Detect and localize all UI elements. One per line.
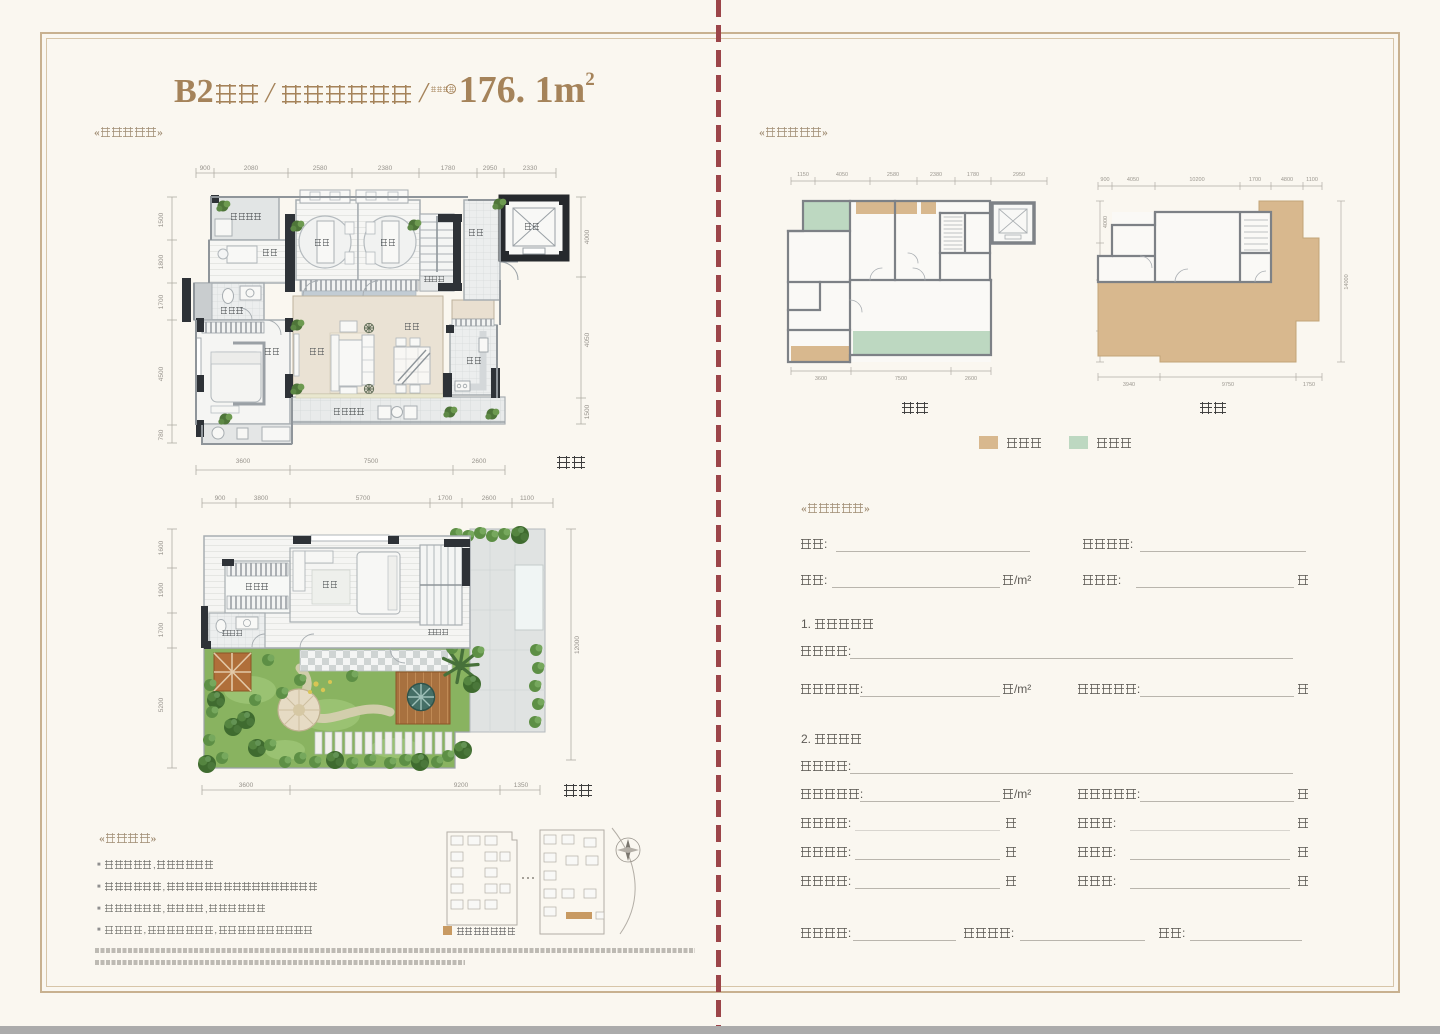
svg-text:2380: 2380 [930, 172, 942, 178]
svg-text:1780: 1780 [967, 172, 979, 178]
svg-text:2950: 2950 [483, 165, 498, 172]
svg-text:2380: 2380 [378, 165, 393, 172]
svg-text:12000: 12000 [574, 636, 581, 654]
svg-text:4050: 4050 [836, 172, 848, 178]
svg-text:1150: 1150 [797, 172, 809, 178]
svg-text:7500: 7500 [895, 376, 907, 382]
svg-text:4000: 4000 [584, 229, 591, 244]
svg-text:9200: 9200 [454, 782, 469, 789]
svg-text:1100: 1100 [520, 495, 534, 502]
svg-text:1700: 1700 [1249, 177, 1261, 183]
svg-text:1800: 1800 [158, 254, 165, 269]
svg-text:1700: 1700 [158, 294, 165, 309]
svg-text:1500: 1500 [584, 404, 591, 419]
svg-text:2080: 2080 [244, 165, 259, 172]
svg-text:2330: 2330 [523, 165, 538, 172]
svg-text:14000: 14000 [1344, 274, 1350, 289]
svg-text:900: 900 [215, 495, 226, 502]
svg-text:900: 900 [200, 165, 211, 172]
svg-text:3600: 3600 [239, 782, 254, 789]
svg-text:900: 900 [1100, 177, 1109, 183]
svg-text:4050: 4050 [1127, 177, 1139, 183]
svg-text:1600: 1600 [158, 540, 165, 555]
svg-text:1100: 1100 [1306, 177, 1318, 183]
svg-text:3940: 3940 [1123, 382, 1135, 388]
svg-text:2580: 2580 [887, 172, 899, 178]
svg-text:5200: 5200 [158, 697, 165, 712]
svg-text:2600: 2600 [965, 376, 977, 382]
svg-text:4500: 4500 [158, 366, 165, 381]
svg-text:4800: 4800 [1281, 177, 1293, 183]
svg-text:2580: 2580 [313, 165, 328, 172]
svg-text:9750: 9750 [1222, 382, 1234, 388]
svg-text:1700: 1700 [438, 495, 453, 502]
svg-text:3800: 3800 [254, 495, 269, 502]
svg-text:2950: 2950 [1013, 172, 1025, 178]
svg-text:2600: 2600 [472, 458, 487, 465]
svg-text:3600: 3600 [815, 376, 827, 382]
svg-text:4050: 4050 [584, 332, 591, 347]
svg-text:1780: 1780 [441, 165, 456, 172]
svg-text:780: 780 [158, 429, 165, 440]
svg-text:1700: 1700 [158, 622, 165, 637]
svg-text:3600: 3600 [236, 458, 251, 465]
svg-text:1900: 1900 [158, 582, 165, 597]
svg-text:1500: 1500 [158, 212, 165, 227]
svg-text:1750: 1750 [1303, 382, 1315, 388]
svg-text:10200: 10200 [1189, 177, 1204, 183]
svg-text:7500: 7500 [364, 458, 379, 465]
svg-text:5700: 5700 [356, 495, 371, 502]
svg-text:4000: 4000 [1103, 216, 1109, 228]
svg-text:2600: 2600 [482, 495, 497, 502]
svg-text:1350: 1350 [514, 782, 529, 789]
